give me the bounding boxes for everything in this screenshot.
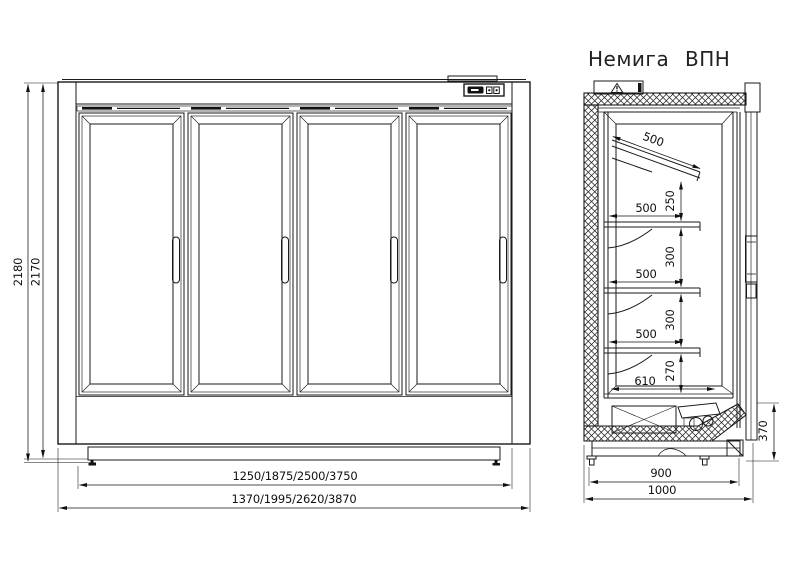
- dim-gap1: 300: [663, 246, 677, 267]
- dim-height-inner: 2170: [29, 258, 43, 286]
- side-feet: [587, 456, 709, 465]
- insulation-back: [584, 105, 598, 426]
- dim-gap3: 270: [663, 360, 677, 381]
- shelf-3: 500: [604, 327, 700, 374]
- model-title: Немига ВПН: [588, 47, 730, 71]
- dim-depth-inner: 900: [650, 466, 671, 480]
- side-door: [727, 83, 760, 456]
- door-handle[interactable]: [173, 237, 180, 283]
- top-lip: [448, 76, 497, 81]
- insulation-bottom: [584, 404, 746, 441]
- shelf-spacing-dims: 250 300 300 270 610: [612, 182, 715, 393]
- dim-depth-outer: 1000: [648, 483, 676, 497]
- glass-door-4[interactable]: [406, 113, 511, 395]
- front-dimensions: 2180 2170 1250/1875/2500/3750 1370/1995/…: [11, 83, 530, 512]
- dim-height-outer: 2180: [11, 258, 25, 286]
- insulation-top: [584, 93, 746, 105]
- dim-floor-depth: 610: [634, 374, 655, 388]
- dim-machine-height: 370: [756, 420, 770, 441]
- cabinet-body: [58, 82, 530, 444]
- drawing-canvas: 2180 2170 1250/1875/2500/3750 1370/1995/…: [0, 0, 800, 566]
- door-handle[interactable]: [500, 237, 507, 283]
- dim-shelf3-depth: 500: [635, 327, 656, 341]
- canopy-shelf: 500: [612, 129, 700, 181]
- dim-width-outer: 1370/1995/2620/3870: [232, 492, 357, 506]
- glass-door-3[interactable]: [297, 113, 402, 395]
- shelf-2: 500: [604, 267, 700, 314]
- controller-display: [464, 84, 504, 96]
- warning-label: [594, 81, 643, 94]
- door-handle[interactable]: [391, 237, 398, 283]
- front-base: [88, 447, 500, 466]
- foot: [493, 463, 501, 466]
- glass-door-1[interactable]: [79, 113, 184, 395]
- base-frame: [592, 441, 740, 456]
- dim-shelf2-depth: 500: [635, 267, 656, 281]
- side-view: Немига ВПН: [584, 47, 779, 503]
- glass-door-2[interactable]: [188, 113, 293, 395]
- corner-cap: [745, 83, 760, 112]
- dim-gap2: 300: [663, 309, 677, 330]
- shelf-1: 500: [604, 201, 700, 248]
- dim-shelf1-depth: 500: [635, 201, 656, 215]
- door-handle[interactable]: [282, 237, 289, 283]
- door-top-track: [77, 106, 512, 111]
- dim-canopy-gap: 250: [663, 190, 677, 211]
- foot: [89, 463, 97, 466]
- evaporator-tray: [678, 403, 720, 418]
- technical-drawing-sheet: 2180 2170 1250/1875/2500/3750 1370/1995/…: [0, 0, 800, 566]
- dim-canopy-depth: 500: [641, 129, 666, 149]
- front-view: 2180 2170 1250/1875/2500/3750 1370/1995/…: [11, 76, 530, 512]
- dim-width-inner: 1250/1875/2500/3750: [233, 469, 358, 483]
